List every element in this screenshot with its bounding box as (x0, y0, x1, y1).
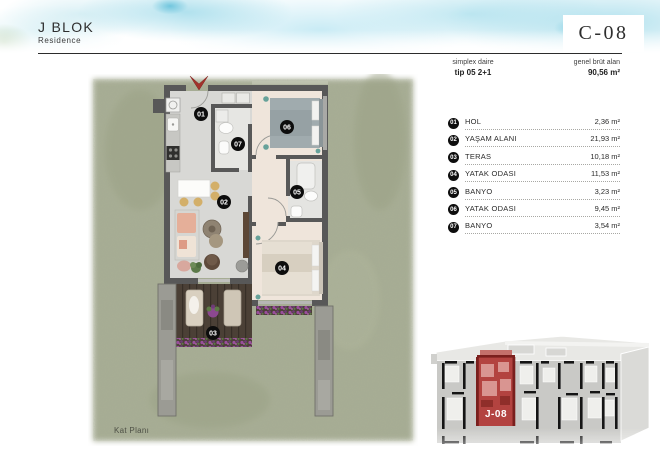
apartment-floor-plan: 01 02 03 04 05 06 07 (88, 74, 418, 446)
legend-room-area: 9,45 m² (595, 204, 620, 213)
svg-text:03: 03 (209, 330, 217, 337)
legend-room-area: 21,93 m² (590, 134, 620, 143)
block-title: J BLOK (38, 19, 94, 35)
legend-room-name: YATAK ODASI (465, 204, 516, 213)
legend-badge: 07 (448, 222, 459, 233)
unit-code: C-08 (579, 22, 629, 45)
block-subtitle: Residence (38, 36, 81, 45)
legend-badge: 03 (448, 152, 459, 163)
plan-badge-06: 06 (280, 120, 294, 134)
legend-badge: 06 (448, 204, 459, 215)
plan-badge-01: 01 (194, 107, 208, 121)
room-legend: 01 HOL 2,36 m² 02 YAŞAM ALANI 21,93 m² 0… (448, 117, 620, 239)
gross-area-value: 90,56 m² (540, 68, 620, 77)
legend-room-area: 3,54 m² (595, 221, 620, 230)
legend-row-01: 01 HOL 2,36 m² (448, 117, 620, 130)
legend-room-area: 3,23 m² (595, 187, 620, 196)
legend-row-07: 07 BANYO 3,54 m² (448, 221, 620, 234)
plan-badge-07: 07 (231, 137, 245, 151)
svg-text:04: 04 (278, 265, 286, 272)
legend-room-name: YATAK ODASI (465, 169, 516, 178)
unit-code-box: C-08 (563, 15, 644, 52)
svg-text:07: 07 (234, 141, 242, 148)
legend-room-name: TERAS (465, 152, 491, 161)
key-plan: J-08 (428, 330, 660, 464)
floor-plan-sheet: J BLOK Residence C-08 simplex daire tip … (0, 0, 660, 466)
watercolor-header-banner (0, 0, 660, 56)
plan-badge-04: 04 (275, 261, 289, 275)
legend-row-02: 02 YAŞAM ALANI 21,93 m² (448, 134, 620, 147)
svg-text:01: 01 (197, 111, 205, 118)
legend-badge: 04 (448, 170, 459, 181)
unit-type-value: tip 05 2+1 (436, 68, 510, 77)
legend-row-03: 03 TERAS 10,18 m² (448, 152, 620, 165)
legend-badge: 01 (448, 118, 459, 129)
legend-room-area: 2,36 m² (595, 117, 620, 126)
legend-badge: 05 (448, 187, 459, 198)
legend-room-name: BANYO (465, 187, 493, 196)
plan-badge-02: 02 (217, 195, 231, 209)
legend-row-05: 05 BANYO 3,23 m² (448, 187, 620, 200)
key-plan-building (431, 336, 649, 444)
legend-badge: 02 (448, 135, 459, 146)
roof-overhang-line (252, 81, 328, 85)
svg-text:06: 06 (283, 124, 291, 131)
header-divider-line (38, 53, 622, 54)
legend-room-name: YAŞAM ALANI (465, 134, 517, 143)
svg-text:02: 02 (220, 199, 228, 206)
svg-text:05: 05 (293, 189, 301, 196)
legend-room-area: 11,53 m² (591, 169, 620, 178)
legend-row-04: 04 YATAK ODASI 11,53 m² (448, 169, 620, 182)
plan-badge-03: 03 (206, 326, 220, 340)
key-plan-fade (428, 428, 660, 464)
plan-caption: Kat Planı (114, 426, 149, 435)
bedroom-04-furniture (256, 236, 324, 300)
highlighted-unit-label: J-08 (485, 409, 507, 420)
highlighted-unit: J-08 (476, 350, 515, 426)
unit-type-label: simplex daire (436, 58, 510, 67)
gross-area-block: genel brüt alan 90,56 m² (540, 58, 620, 77)
legend-room-area: 10,18 m² (590, 152, 620, 161)
plan-badge-05: 05 (290, 185, 304, 199)
legend-room-name: BANYO (465, 221, 493, 230)
unit-type-block: simplex daire tip 05 2+1 (436, 58, 510, 77)
legend-room-name: HOL (465, 117, 481, 126)
legend-row-06: 06 YATAK ODASI 9,45 m² (448, 204, 620, 217)
gross-area-label: genel brüt alan (540, 58, 620, 67)
